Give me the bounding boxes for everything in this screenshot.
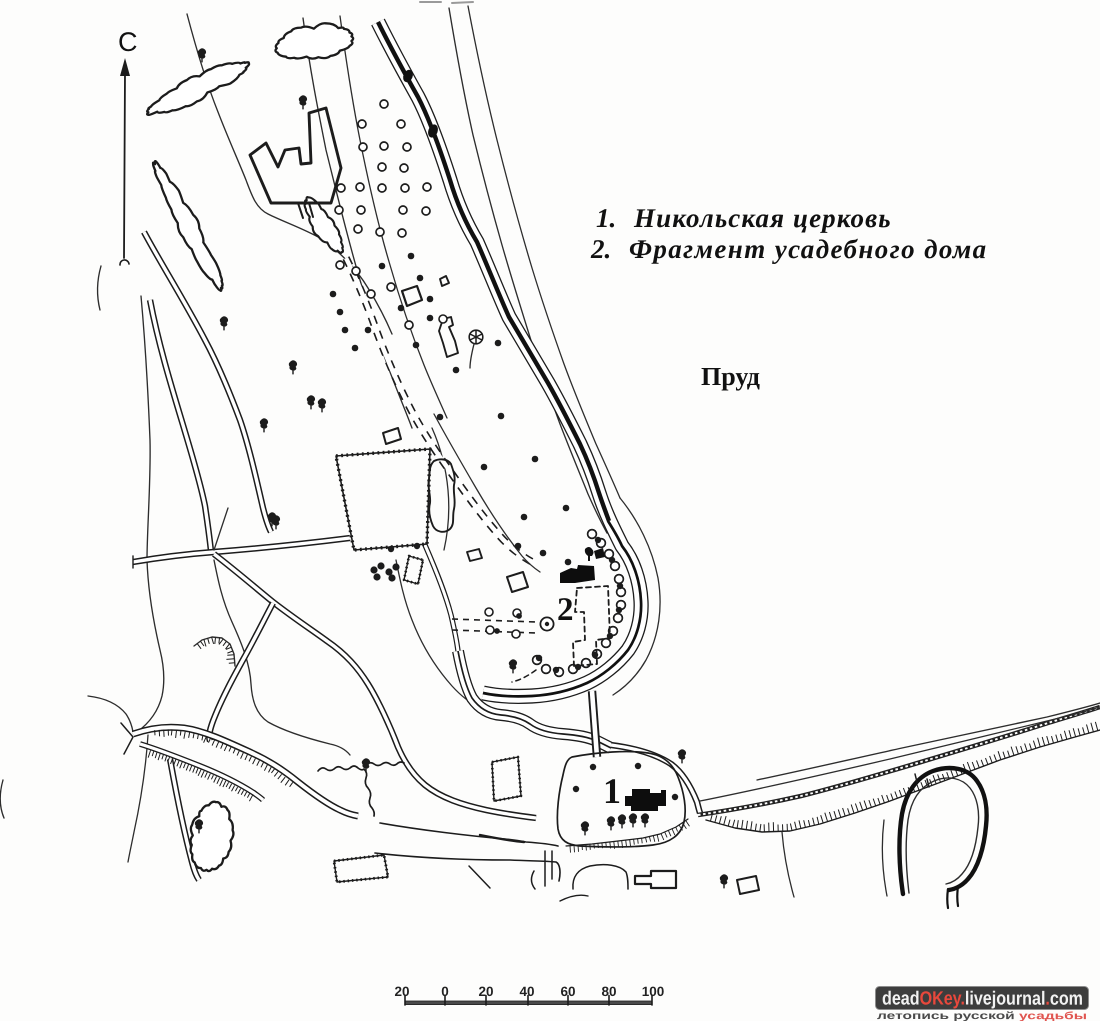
- svg-text:Пруд: Пруд: [701, 362, 760, 391]
- svg-text:2.: 2.: [590, 234, 611, 264]
- svg-text:Фрагмент усадебного дома: Фрагмент усадебного дома: [629, 234, 988, 264]
- svg-text:летопись русской усадьбы: летопись русской усадьбы: [877, 1010, 1087, 1021]
- svg-text:20: 20: [478, 984, 493, 999]
- svg-text:0: 0: [441, 984, 449, 999]
- svg-text:80: 80: [601, 984, 616, 999]
- svg-text:1: 1: [603, 771, 621, 811]
- svg-text:С: С: [118, 27, 138, 57]
- svg-text:2: 2: [557, 592, 574, 628]
- svg-text:deadOKey.livejournal.com: deadOKey.livejournal.com: [882, 989, 1083, 1010]
- svg-text:Никольская церковь: Никольская церковь: [633, 203, 892, 233]
- svg-text:60: 60: [560, 984, 575, 999]
- svg-text:100: 100: [642, 984, 665, 999]
- svg-text:1.: 1.: [596, 203, 616, 233]
- svg-text:40: 40: [519, 984, 534, 999]
- svg-text:20: 20: [394, 984, 409, 999]
